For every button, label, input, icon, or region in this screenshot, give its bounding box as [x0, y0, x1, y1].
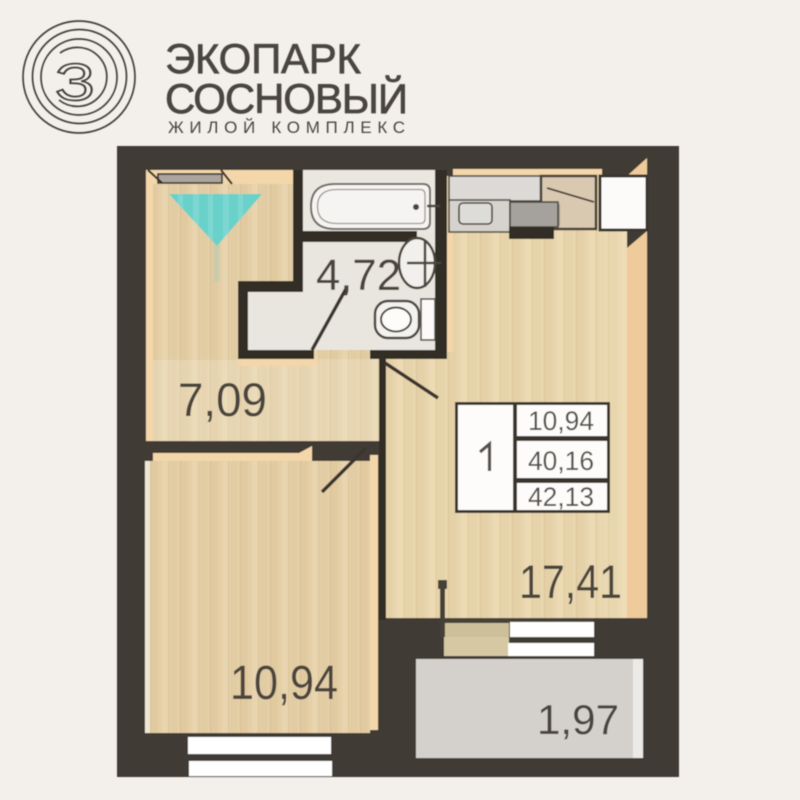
- svg-text:З: З: [55, 54, 95, 112]
- svg-text:1,97: 1,97: [537, 696, 619, 743]
- svg-text:10,94: 10,94: [528, 406, 594, 436]
- svg-text:40,16: 40,16: [528, 446, 594, 476]
- svg-text:17,41: 17,41: [519, 555, 622, 608]
- svg-text:4,72: 4,72: [316, 251, 401, 300]
- svg-text:10,94: 10,94: [230, 657, 338, 710]
- svg-text:7,09: 7,09: [178, 373, 267, 426]
- svg-text:42,13: 42,13: [528, 482, 594, 512]
- svg-text:СОСНОВЫЙ: СОСНОВЫЙ: [165, 74, 408, 122]
